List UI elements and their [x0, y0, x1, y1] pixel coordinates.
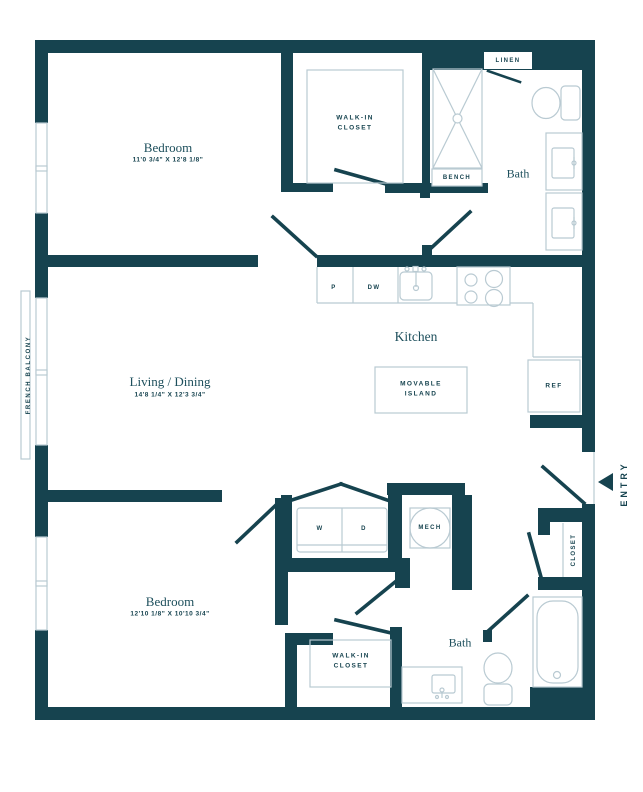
room-label-bath-top: Bath: [507, 167, 530, 182]
label-walkin-closet-top: WALK-IN CLOSET: [336, 114, 374, 135]
label-pantry: P: [331, 285, 336, 291]
label-movable-island: MOVABLE ISLAND: [400, 380, 442, 401]
room-label-bath-bottom: Bath: [449, 636, 472, 651]
label-dishwasher: DW: [368, 285, 381, 291]
door-laundry-bifold-left: [292, 484, 341, 500]
room-dims-bedroom-top: 11'0 3/4" X 12'8 1/8": [133, 157, 204, 164]
shower: [433, 69, 482, 168]
washer-dryer: [297, 508, 387, 552]
label-dryer: D: [361, 526, 367, 532]
door-bath-bottom: [486, 596, 527, 633]
label-closet: CLOSET: [571, 534, 577, 567]
door-entry-closet: [529, 534, 541, 577]
door-bedroom-top: [273, 217, 316, 256]
door-laundry-bifold-right: [341, 484, 387, 500]
windows: [21, 123, 594, 630]
room-label-bedroom-bottom: Bedroom: [146, 594, 194, 610]
kitchen-sink: [400, 267, 432, 301]
label-walkin-closet-bottom: WALK-IN CLOSET: [332, 652, 370, 673]
toilet-bottom: [484, 653, 512, 705]
label-bench: BENCH: [443, 175, 471, 181]
kitchen-counter: [317, 267, 582, 357]
floor-plan: Bedroom 11'0 3/4" X 12'8 1/8" WALK-IN CL…: [0, 0, 643, 792]
label-ref: REF: [545, 383, 562, 390]
room-label-living: Living / Dining: [130, 374, 211, 390]
label-washer: W: [316, 526, 323, 532]
entry-arrow-icon: [598, 473, 613, 491]
label-french-balcony: FRENCH BALCONY: [26, 336, 32, 415]
walls: [35, 40, 595, 720]
room-dims-living: 14'8 1/4" X 12'3 3/4": [134, 392, 205, 399]
door-bedroom-bottom: [237, 505, 276, 542]
door-bath-top: [428, 212, 470, 251]
vanity-bottom: [402, 667, 462, 703]
bathtub: [533, 597, 582, 687]
door-hall-bottom: [357, 582, 395, 613]
room-label-bedroom-top: Bedroom: [144, 140, 192, 156]
stove: [457, 267, 510, 307]
vanity-top-2: [546, 193, 582, 250]
door-entry: [543, 467, 584, 503]
room-dims-bedroom-bottom: 12'10 1/8" X 10'10 3/4": [130, 611, 209, 618]
toilet-top: [532, 86, 580, 120]
label-linen: LINEN: [496, 58, 521, 64]
floor-plan-drawing: [0, 0, 643, 792]
vanity-top-1: [546, 133, 582, 190]
door-linen: [488, 71, 520, 82]
room-label-kitchen: Kitchen: [395, 329, 438, 345]
door-walkin-closet-bottom: [336, 620, 391, 633]
door-walkin-closet-top: [336, 170, 386, 184]
label-mech: MECH: [418, 525, 441, 531]
label-entry: ENTRY: [619, 461, 629, 506]
